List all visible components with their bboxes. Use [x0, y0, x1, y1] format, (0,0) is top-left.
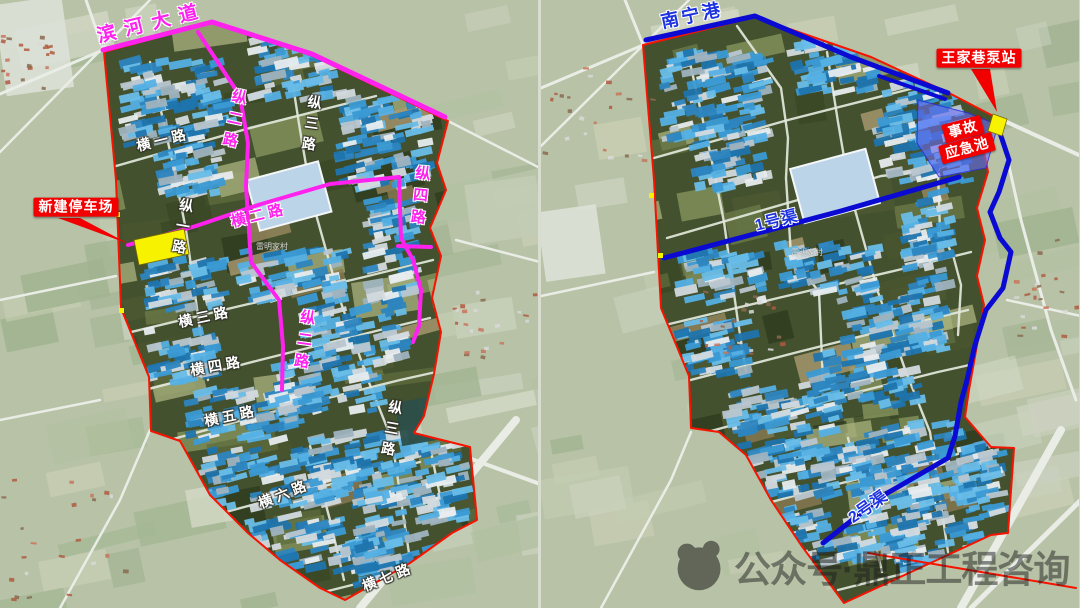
nanning-port-label: 南宁港 — [659, 0, 725, 32]
heng-3-road-label: 横三路 — [177, 304, 233, 330]
zong-4-road-label: 纵四路 — [408, 164, 431, 231]
zong-3-road-label-bottom: 纵三路 — [378, 399, 403, 464]
panda-logo-icon — [672, 538, 728, 594]
watermark: 公众号·鼎正工程咨询 — [672, 538, 1069, 594]
village-label: 雷明家村 — [256, 243, 288, 251]
pump-station-callout: 王家巷泵站 — [937, 49, 1022, 68]
canal-2-label: 2号渠 — [846, 489, 892, 528]
heng-6-road-label: 横六路 — [256, 477, 312, 511]
heng-5-road-label: 横五路 — [203, 403, 259, 429]
panel-divider — [538, 0, 541, 608]
zong-1-road-label: 纵一路 — [169, 197, 194, 262]
heng-1-road-label: 横一路 — [135, 126, 191, 153]
left-map-panel: 滨河大道纵二路横一路纵三路纵一路横二路纵四路新建停车场横三路纵二路横四路横五路横… — [0, 0, 538, 608]
binhe-avenue-label: 滨河大道 — [95, 1, 209, 47]
left-map-labels: 滨河大道纵二路横一路纵三路纵一路横二路纵四路新建停车场横三路纵二路横四路横五路横… — [0, 0, 538, 608]
zong-3-road-label-top: 纵三路 — [299, 94, 322, 158]
right-map-labels: 南宁港王家巷泵站事故应急池1号渠2号渠雷明家村 — [541, 0, 1079, 608]
heng-7-road-label: 横七路 — [360, 560, 416, 594]
heng-4-road-label: 横四路 — [189, 354, 245, 378]
canal-1-label: 1号渠 — [754, 209, 801, 236]
parking-callout: 新建停车场 — [34, 198, 119, 217]
heng-2-road-label: 横二路 — [229, 201, 288, 230]
right-map-panel: 南宁港王家巷泵站事故应急池1号渠2号渠雷明家村 — [541, 0, 1079, 608]
zong-2-road-label-top: 纵二路 — [218, 87, 247, 155]
zong-2-road-label-mid: 纵二路 — [291, 308, 316, 376]
satellite-comparison-figure: 滨河大道纵二路横一路纵三路纵一路横二路纵四路新建停车场横三路纵二路横四路横五路横… — [0, 0, 1080, 608]
watermark-text: 公众号·鼎正工程咨询 — [734, 539, 1069, 593]
village-label: 雷明家村 — [791, 249, 823, 257]
